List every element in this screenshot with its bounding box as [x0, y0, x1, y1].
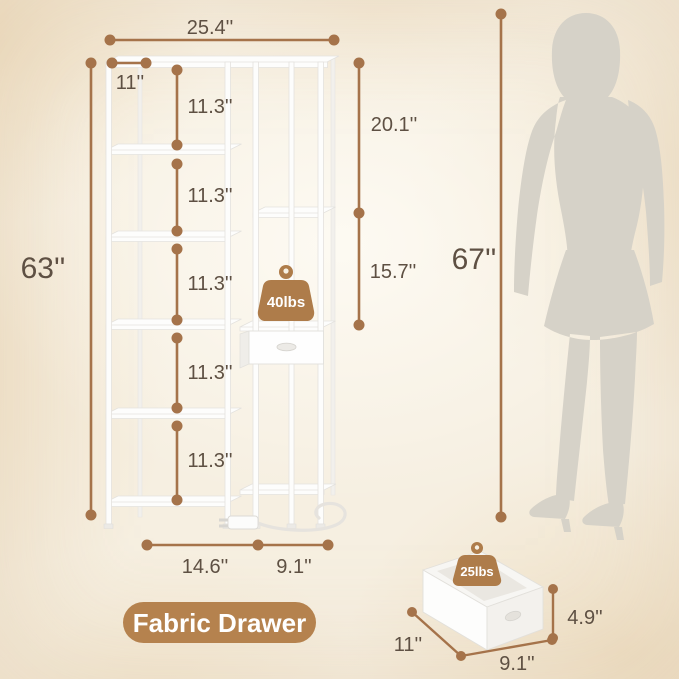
weight-25-label: 25lbs [460, 564, 493, 579]
dim-dot [172, 140, 183, 151]
diagram-svg: 40lbs [0, 0, 679, 679]
dim-dot [172, 333, 183, 344]
dim-dot [547, 635, 557, 645]
drawer-side [240, 331, 249, 368]
weight-knob-hole [283, 268, 288, 273]
dim-dot [354, 320, 365, 331]
dim-label-base-right: 9.1'' [276, 556, 311, 578]
dim-dot [407, 607, 417, 617]
dim-dot [548, 584, 558, 594]
dim-label-gap-5: 11.3'' [187, 450, 232, 472]
dim-label-top-depth: 11'' [116, 72, 144, 94]
dim-label-right-upper: 20.1'' [371, 114, 418, 136]
cord-wire [258, 503, 345, 530]
weight-40-label: 40lbs [267, 294, 305, 311]
dim-dot [172, 244, 183, 255]
power-cord [219, 503, 345, 530]
dim-dot [172, 315, 183, 326]
dim-label-box-width: 9.1'' [499, 653, 534, 675]
dim-dot [105, 35, 116, 46]
dim-dot [253, 540, 264, 551]
shelf-feet [104, 524, 325, 529]
dim-label-gap-3: 11.3'' [187, 273, 232, 295]
dim-dot [456, 651, 466, 661]
dim-dot [86, 510, 97, 521]
dim-dot [142, 540, 153, 551]
dim-dot [496, 9, 507, 20]
callout: Fabric Drawer [123, 602, 316, 643]
dim-dot [354, 58, 365, 69]
dim-label-person-height: 67'' [452, 243, 497, 276]
drawer-handle [277, 343, 296, 351]
dim-label-gap-2: 11.3'' [187, 185, 232, 207]
product-dimension-diagram: 40lbs [0, 0, 679, 679]
shelf-drawer [240, 331, 324, 368]
plug-body [228, 516, 258, 529]
weight-badge-25: 25lbs [453, 542, 501, 586]
dim-dot [172, 403, 183, 414]
dim-label-gap-1: 11.3'' [187, 96, 232, 118]
dim-dot [323, 540, 334, 551]
person-for-scale [514, 13, 664, 540]
dim-label-total-height: 63'' [21, 252, 66, 285]
callout-label: Fabric Drawer [133, 608, 306, 638]
dim-label-box-depth: 11'' [394, 634, 422, 656]
dim-dot [107, 58, 118, 69]
dim-label-box-height: 4.9'' [567, 607, 602, 629]
dim-dot [172, 226, 183, 237]
dim-dot [329, 35, 340, 46]
weight-knob-hole [475, 545, 479, 549]
dimension-lines [91, 14, 501, 545]
woman-silhouette [514, 13, 664, 540]
dim-label-right-lower: 15.7'' [370, 261, 417, 283]
dim-label-base-left: 14.6'' [182, 556, 229, 578]
dim-label-gap-4: 11.3'' [187, 362, 232, 384]
dim-dot [172, 65, 183, 76]
dim-label-top-width: 25.4'' [187, 17, 234, 39]
dim-dot [354, 208, 365, 219]
dim-dot [172, 495, 183, 506]
dim-dot [141, 58, 152, 69]
dim-dot [496, 512, 507, 523]
dim-dot [172, 421, 183, 432]
weight-badge-40: 40lbs [258, 265, 314, 321]
dim-dot [172, 159, 183, 170]
dim-dot [86, 58, 97, 69]
